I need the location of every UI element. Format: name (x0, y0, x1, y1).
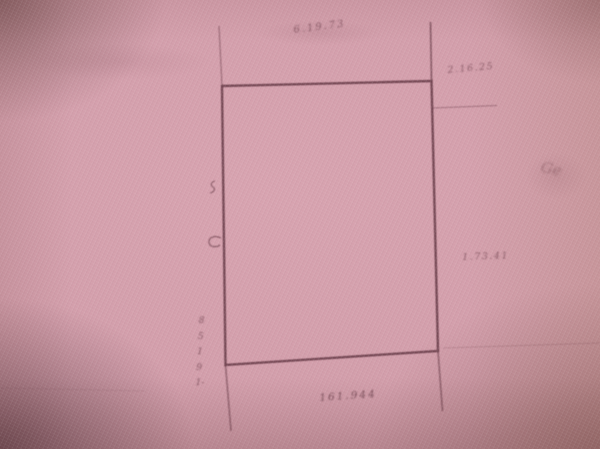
dimension-label-right: 1.73.41 (462, 250, 509, 263)
tick-line-right (433, 106, 497, 109)
extension-line-top-right (431, 22, 432, 81)
paper-crease-left (0, 388, 145, 391)
extension-line-top-left (219, 26, 222, 86)
parcel-outline (222, 81, 438, 365)
plat-line-drawing (0, 0, 600, 449)
pen-mark-loop (209, 237, 221, 247)
extension-line-bottom-left (226, 365, 232, 431)
extension-line-bottom-right (438, 351, 443, 411)
pen-mark-upper (210, 181, 215, 193)
paper-crease-right (443, 343, 600, 348)
photo-of-plat-drawing: 6.19.73 2.16.25 1.73.41 161.944 85191- G… (0, 0, 600, 449)
